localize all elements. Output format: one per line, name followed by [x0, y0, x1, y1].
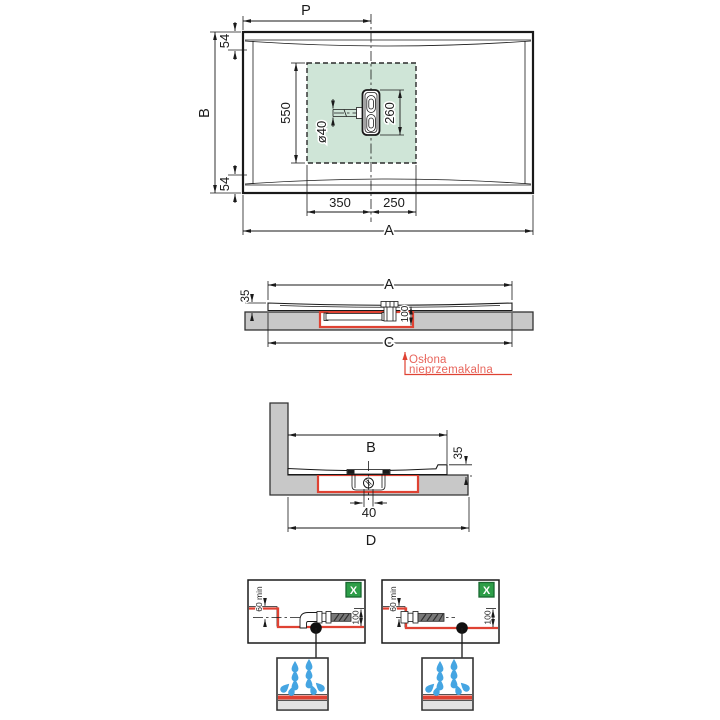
detail-left-60min-label: 60 min [254, 586, 264, 612]
dim-right-offset-label: 250 [383, 195, 405, 210]
install-detail-left: 60 min 100 X [248, 580, 365, 658]
front-section-view: A 35 100 C Osłona nieprzemakalna [240, 277, 533, 376]
side-dim-35-label: 35 [453, 447, 465, 460]
dim-drain-length-label: 260 [382, 102, 397, 124]
side-dim-40-label: 40 [362, 505, 376, 520]
dim-a-label: A [384, 223, 394, 239]
detail-right-60min-label: 60 min [388, 586, 398, 612]
side-dim-d-label: D [366, 533, 376, 549]
front-dim-100-label: 100 [400, 305, 411, 322]
install-detail-right: 60 min 100 X [382, 580, 499, 658]
drain-body-top-view [363, 90, 380, 135]
callout-line2: nieprzemakalna [409, 364, 493, 376]
dim-p-label: P [301, 3, 311, 19]
dim-rim-top-label: 54 [217, 34, 232, 48]
side-dim-b-label: B [366, 440, 376, 456]
top-view: P B 54 54 550 260 ø40 350 [197, 3, 533, 239]
spray-callout-left [277, 658, 328, 710]
waterproof-layer-right [423, 696, 472, 700]
dim-pipe-diameter-label: ø40 [314, 121, 329, 143]
waterproof-layer-left [278, 696, 327, 700]
technical-drawing-page: P B 54 54 550 260 ø40 350 [0, 0, 720, 720]
detail-right-100-label: 100 [483, 610, 493, 624]
front-dim-c-label: C [384, 335, 394, 351]
dim-b-label: B [197, 108, 213, 118]
side-section-view: B 35 40 D [270, 403, 472, 549]
waterproof-cover-callout: Osłona nieprzemakalna [405, 352, 512, 376]
drain-pipe-right [401, 612, 444, 624]
detail-left-100-label: 100 [351, 610, 361, 624]
front-dim-35-label: 35 [240, 290, 252, 303]
dim-left-offset-label: 350 [329, 195, 351, 210]
shower-tray-installation-drawing: P B 54 54 550 260 ø40 350 [0, 0, 720, 720]
detail-right-badge-label: X [483, 585, 491, 597]
spray-callout-right [422, 658, 473, 710]
detail-left-badge-label: X [350, 585, 358, 597]
dim-zone-height-label: 550 [278, 102, 293, 124]
dim-rim-bottom-label: 54 [217, 177, 232, 191]
front-dim-a-label: A [384, 277, 394, 293]
